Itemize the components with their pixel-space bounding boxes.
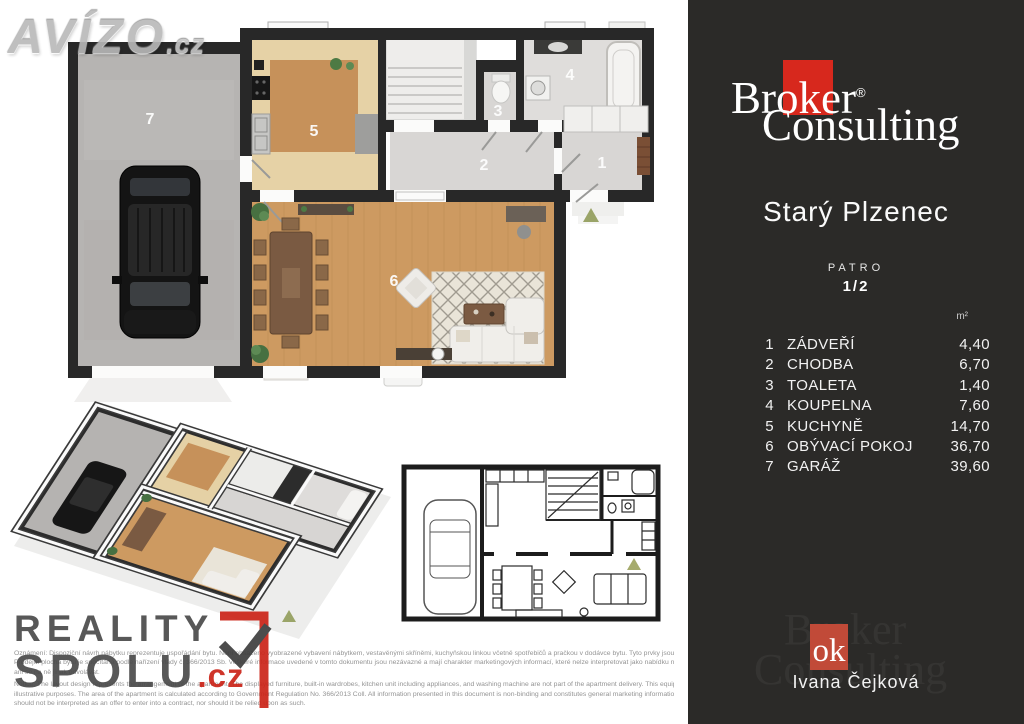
- room-list: 1 ZÁDVEŘÍ 4,40 2 CHODBA 6,70 3 TOALETA 1…: [758, 336, 990, 479]
- room-area: 36,70: [942, 438, 990, 455]
- room-area: 7,60: [942, 397, 990, 414]
- entry-fittings: [637, 137, 650, 175]
- room-number: 4: [758, 397, 774, 414]
- info-sidebar: Broker® Consulting Starý Plzenec PATRO 1…: [688, 0, 1024, 724]
- floor-plan-2d: [398, 462, 664, 634]
- room-number: 2: [758, 356, 774, 373]
- room-row: 5 KUCHYNĚ 14,70: [758, 418, 990, 438]
- avizo-name: AVÍZO: [8, 11, 166, 64]
- room-number: 6: [758, 438, 774, 455]
- reality-spolu-logo: REALITY SPOLU.cz: [14, 610, 245, 699]
- label-entry: 1: [598, 155, 607, 172]
- room-row: 1 ZÁDVEŘÍ 4,40: [758, 336, 990, 356]
- avizo-watermark: AVÍZO.cz: [8, 10, 205, 65]
- label-bathroom: 4: [566, 67, 575, 84]
- room-number: 1: [758, 336, 774, 353]
- agent-name: Ivana Čejková: [688, 672, 1024, 693]
- main-floor-plan: 7 5 3 4 2 1 6: [64, 20, 664, 402]
- flyer-canvas: 7 5 3 4 2 1 6: [0, 0, 1024, 724]
- room-name: KUCHYNĚ: [787, 418, 942, 435]
- room-number: 7: [758, 458, 774, 475]
- location-title: Starý Plzenec: [688, 196, 1024, 228]
- room-number: 3: [758, 377, 774, 394]
- unit-label: m²: [956, 311, 968, 322]
- room-row: 6 OBÝVACÍ POKOJ 36,70: [758, 438, 990, 458]
- label-hall: 2: [480, 157, 489, 174]
- room-area: 1,40: [942, 377, 990, 394]
- reality-spolu-check-icon: [210, 604, 274, 716]
- room-area: 14,70: [942, 418, 990, 435]
- floor-label: PATRO: [688, 262, 1024, 274]
- room-row: 2 CHODBA 6,70: [758, 356, 990, 376]
- room-area: 39,60: [942, 458, 990, 475]
- room-name: KOUPELNA: [787, 397, 942, 414]
- room-name: TOALETA: [787, 377, 942, 394]
- brand-word2: Consulting: [762, 103, 960, 148]
- room-name: ZÁDVEŘÍ: [787, 336, 942, 353]
- toilet-fixture: [492, 74, 510, 103]
- room-number: 5: [758, 418, 774, 435]
- room-name: GARÁŽ: [787, 458, 942, 475]
- room-row: 4 KOUPELNA 7,60: [758, 397, 990, 417]
- room-area: 6,70: [942, 356, 990, 373]
- room-name: OBÝVACÍ POKOJ: [787, 438, 942, 455]
- room-row: 7 GARÁŽ 39,60: [758, 458, 990, 478]
- floor-value: 1/2: [688, 278, 1024, 295]
- label-kitchen: 5: [310, 123, 319, 140]
- label-toilet: 3: [494, 103, 503, 120]
- registered-mark: ®: [856, 85, 866, 100]
- disclaimer-en-line3: should not be interpreted as an offer to…: [14, 699, 674, 708]
- broker-consulting-logo: Broker® Consulting: [688, 0, 1024, 170]
- room-row: 3 TOALETA 1,40: [758, 377, 990, 397]
- agent-logo: ok: [810, 624, 848, 670]
- room-area: 4,40: [942, 336, 990, 353]
- car-top-view: [112, 166, 208, 338]
- label-living: 6: [390, 273, 399, 290]
- avizo-tld: .cz: [166, 29, 205, 59]
- label-garage: 7: [146, 111, 155, 128]
- room-name: CHODBA: [787, 356, 942, 373]
